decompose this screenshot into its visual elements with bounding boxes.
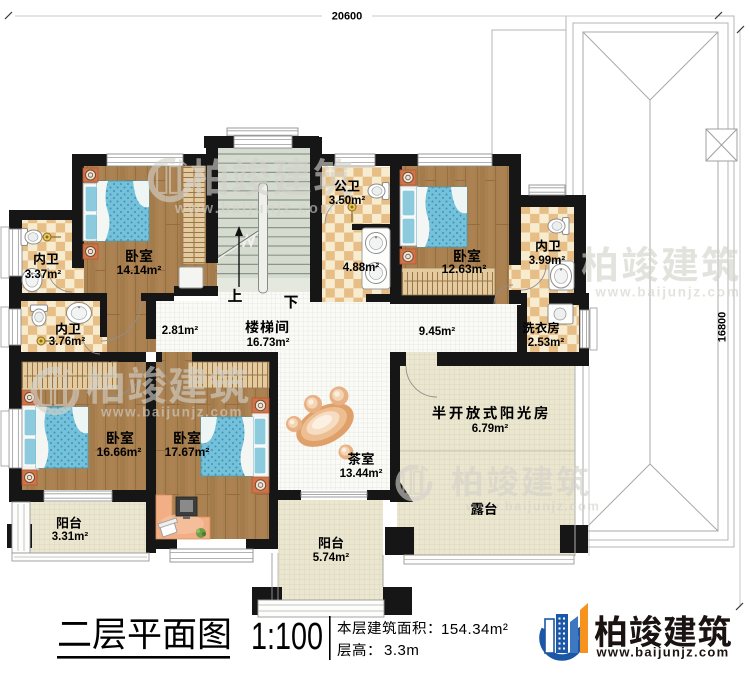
svg-text:3.31m²: 3.31m²	[52, 531, 89, 543]
svg-text:154.34m²: 154.34m²	[441, 621, 508, 638]
svg-text:www.baijunjz.com: www.baijunjz.com	[596, 644, 730, 659]
svg-text:2.53m²: 2.53m²	[528, 337, 565, 349]
svg-text:www.baijunjz.com: www.baijunjz.com	[594, 285, 740, 300]
svg-text:12.63m²: 12.63m²	[442, 262, 487, 276]
svg-text:16800: 16800	[717, 312, 729, 343]
svg-text:www.baijunjz.com: www.baijunjz.com	[174, 201, 335, 217]
svg-text:5.74m²: 5.74m²	[313, 552, 350, 564]
svg-text:3.50m²: 3.50m²	[329, 195, 366, 207]
svg-text:16.73m²: 16.73m²	[247, 337, 290, 349]
svg-text:3.37m²: 3.37m²	[25, 269, 62, 281]
svg-text:www.baijunjz.com: www.baijunjz.com	[465, 498, 601, 513]
svg-text:3.99m²: 3.99m²	[529, 255, 566, 267]
svg-text:20600: 20600	[332, 11, 363, 23]
svg-text:6.79m²: 6.79m²	[472, 423, 509, 435]
svg-text:9.45m²: 9.45m²	[419, 326, 456, 338]
svg-text:3.3m: 3.3m	[384, 642, 419, 659]
svg-text:2.81m²: 2.81m²	[162, 325, 199, 337]
svg-text:17.67m²: 17.67m²	[165, 445, 210, 459]
svg-text:13.44m²: 13.44m²	[340, 468, 383, 480]
svg-text:www.baijunjz.com: www.baijunjz.com	[100, 405, 243, 420]
svg-text:16.66m²: 16.66m²	[97, 445, 142, 459]
svg-text:3.76m²: 3.76m²	[49, 336, 86, 348]
svg-text:14.14m²: 14.14m²	[117, 263, 162, 277]
svg-text:1:100: 1:100	[251, 616, 323, 658]
svg-text:4.88m²: 4.88m²	[343, 262, 380, 274]
